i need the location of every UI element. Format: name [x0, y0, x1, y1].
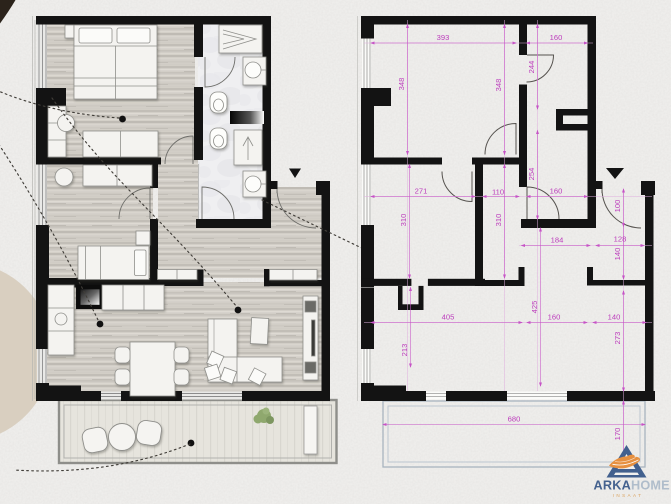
svg-text:254: 254 — [527, 168, 536, 181]
svg-text:310: 310 — [494, 214, 503, 227]
svg-text:160: 160 — [548, 313, 561, 322]
svg-text:160: 160 — [550, 33, 563, 42]
svg-text:110: 110 — [492, 188, 504, 197]
svg-text:244: 244 — [527, 61, 536, 74]
svg-text:425: 425 — [530, 301, 539, 314]
svg-text:ARKAHOME: ARKAHOME — [594, 479, 670, 493]
svg-text:INSAAT: INSAAT — [613, 493, 644, 498]
svg-text:393: 393 — [437, 33, 450, 42]
svg-text:213: 213 — [400, 344, 409, 357]
svg-text:348: 348 — [494, 79, 503, 92]
svg-text:100: 100 — [613, 200, 622, 213]
svg-text:170: 170 — [613, 428, 622, 441]
svg-text:128: 128 — [614, 235, 627, 244]
svg-text:140: 140 — [608, 313, 621, 322]
svg-text:680: 680 — [508, 415, 521, 424]
svg-text:310: 310 — [399, 214, 408, 227]
svg-text:273: 273 — [613, 332, 622, 345]
svg-text:405: 405 — [442, 313, 455, 322]
svg-text:184: 184 — [551, 236, 564, 245]
svg-text:348: 348 — [397, 78, 406, 91]
svg-text:160: 160 — [550, 187, 563, 196]
svg-text:140: 140 — [613, 248, 622, 261]
svg-text:271: 271 — [415, 187, 428, 196]
